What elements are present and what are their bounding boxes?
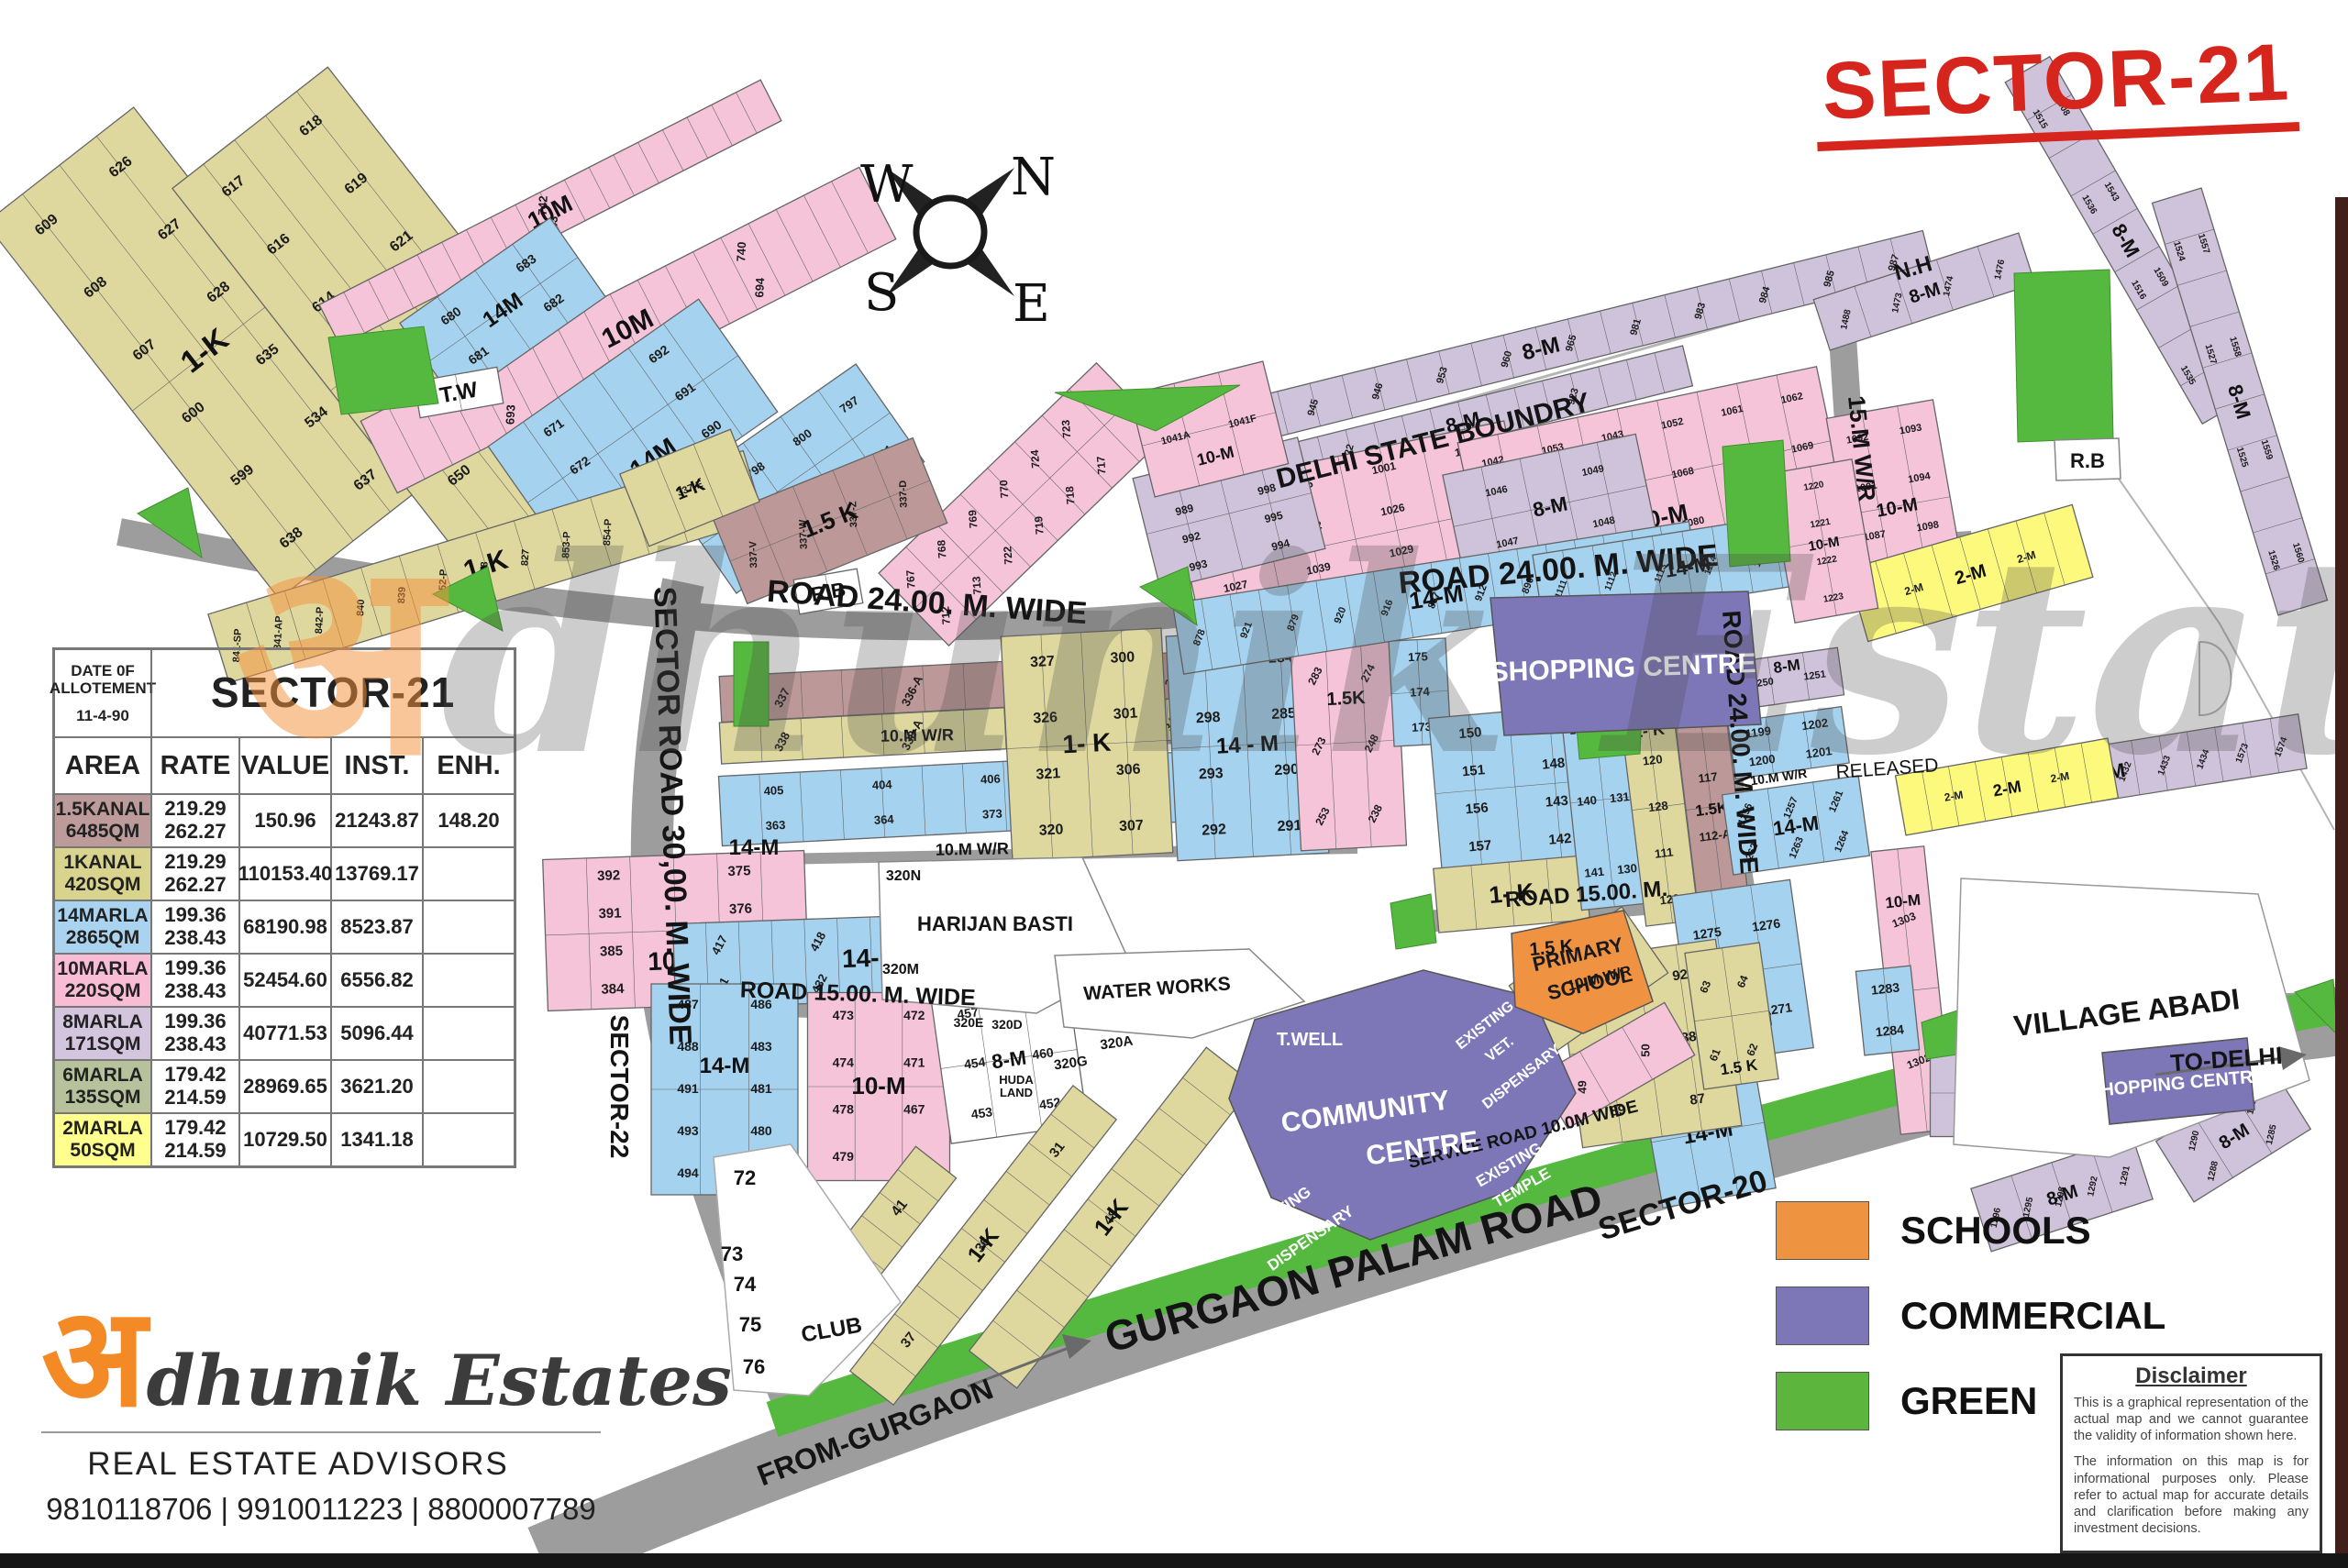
table-cell: 6MARLA135SQM: [54, 1060, 151, 1113]
plot-number: 285: [1271, 706, 1297, 723]
table-sector-title: SECTOR-21: [151, 649, 515, 737]
table-cell: 1KANAL420SQM: [54, 847, 151, 900]
plot-number: 827: [520, 548, 532, 566]
plot-number: 840: [355, 599, 367, 616]
plot-number: 768: [935, 539, 948, 558]
disclaimer-box: Disclaimer This is a graphical represent…: [2060, 1353, 2322, 1553]
plot-number: 392: [597, 867, 621, 884]
plot-number: 453: [970, 1104, 994, 1121]
table-cell: 8MARLA171SQM: [54, 1007, 151, 1060]
plot-number: 853-P: [560, 531, 573, 558]
column-header-value: VALUE: [239, 737, 331, 794]
huda-land-label2: LAND: [1000, 1086, 1033, 1099]
plot-number: 157: [1468, 837, 1492, 855]
table-cell: 3621.20: [331, 1060, 423, 1113]
plot-number: 384: [601, 981, 625, 998]
logo: अdhunik Estates: [41, 1288, 628, 1426]
plot-320m: 320M: [882, 962, 919, 977]
block-type-label: 8-M: [1772, 656, 1801, 677]
wr-label: 10.M W/R: [936, 839, 1009, 858]
table-cell: 1.5KANAL6485QM: [54, 794, 151, 847]
plot-number: 493: [677, 1123, 699, 1138]
plot-number: 307: [1119, 818, 1145, 834]
block-type-label: 10-M: [1885, 891, 1922, 912]
legend-swatch: [1776, 1286, 1869, 1345]
table-cell: 40771.53: [239, 1007, 331, 1060]
table-cell: 21243.87: [331, 794, 423, 847]
table-cell: 110153.40: [239, 847, 331, 900]
plot-block: 2-M2-M2-M: [1896, 738, 2119, 835]
logo-initial: अ: [41, 1276, 147, 1438]
sector-22-label: SECTOR-22: [605, 1015, 634, 1159]
table-cell: 13769.17: [331, 847, 423, 900]
table-cell: 52454.60: [239, 954, 331, 1007]
legend-swatch: [1776, 1372, 1869, 1430]
huda-land-label1: HUDA: [999, 1073, 1034, 1087]
plot-number: 693: [503, 404, 517, 425]
plot-number: 140: [1576, 793, 1597, 809]
block-type-label: 14 - M: [1215, 731, 1279, 759]
boundary-outline: [2199, 642, 2232, 715]
plot-number: 724: [1028, 449, 1042, 469]
table-cell: 28969.65: [239, 1060, 331, 1113]
table-cell: [423, 954, 515, 1007]
legend-item-schools: SCHOOLS: [1776, 1201, 2165, 1260]
plot-number: 143: [1545, 793, 1568, 811]
plot-number: 321: [1036, 766, 1061, 782]
plot-number: 376: [729, 900, 753, 917]
table-cell: [423, 847, 515, 900]
table-cell: [423, 900, 515, 954]
table-cell: 179.42214.59: [151, 1060, 239, 1113]
plot-number: 111: [1654, 845, 1674, 860]
plot-number: 473: [833, 1008, 855, 1022]
plot-number: 842-P: [314, 607, 327, 635]
table-cell: 199.36238.43: [151, 1007, 239, 1060]
green-area: [2014, 270, 2113, 442]
plot-number: 740: [734, 241, 748, 261]
plot-75: 75: [739, 1313, 761, 1336]
plot-number: 474: [833, 1055, 855, 1069]
plot-number: 472: [903, 1008, 925, 1022]
legend-swatch: [1776, 1201, 1869, 1260]
plot-number: 467: [903, 1102, 925, 1117]
date-line1: DATE 0F: [71, 662, 135, 679]
plot-number: 480: [750, 1123, 772, 1138]
compass-east: E: [1013, 274, 1050, 334]
table-cell: 10MARLA220SQM: [54, 954, 151, 1007]
plot-number: 481: [750, 1081, 772, 1096]
plot-block: 2832742732482532381.5K: [1290, 635, 1407, 851]
plot-72: 72: [734, 1166, 756, 1189]
legend-label: COMMERCIAL: [1900, 1294, 2165, 1338]
plot-number: 130: [1616, 861, 1637, 877]
plot-number: 293: [1199, 766, 1224, 782]
column-header-inst: INST.: [331, 737, 423, 794]
plot-number: 718: [1063, 485, 1077, 504]
plot-number: 327: [1030, 654, 1056, 670]
plot-320n: 320N: [886, 868, 921, 884]
compass-north: N: [1011, 148, 1056, 207]
table-cell: 68190.98: [239, 900, 331, 954]
table-cell: 148.20: [423, 794, 515, 847]
table-body: 1.5KANAL6485QM219.29262.27150.9621243.87…: [54, 794, 515, 1166]
block-type-label: 1- K: [1062, 728, 1112, 759]
plot-number: 1284: [1875, 1021, 1905, 1039]
table-cell: 5096.44: [331, 1007, 423, 1060]
branding-block: अdhunik Estates REAL ESTATE ADVISORS 981…: [41, 1288, 628, 1527]
green-area: [328, 326, 438, 414]
plot-number: 405: [763, 783, 783, 798]
plot-number: 391: [598, 905, 622, 922]
plot-number: 337-D: [898, 480, 910, 508]
plot-number: 723: [1059, 419, 1073, 438]
table-cell: [423, 1113, 515, 1166]
disclaimer-paragraph-2: The information on this map is for infor…: [2074, 1453, 2309, 1537]
plot-number: 406: [980, 772, 1001, 787]
plot-number: 120: [1642, 752, 1663, 768]
plot-number: 854-P: [602, 519, 615, 547]
date-value: 11-4-90: [76, 707, 129, 724]
plot-block: 12831284: [1855, 966, 1919, 1055]
plot-number: 148: [1542, 756, 1566, 773]
plot-number: 404: [871, 778, 892, 792]
plot-number: 175: [1408, 649, 1428, 664]
table-cell: 10729.50: [239, 1113, 331, 1166]
table-cell: 6556.82: [331, 954, 423, 1007]
frame-bottom-strip: [0, 1553, 2348, 1568]
table-cell: 2MARLA50SQM: [54, 1113, 151, 1166]
plot-number: 151: [1461, 762, 1485, 779]
plot-number: 49: [1575, 1080, 1589, 1093]
plot-number: 722: [1001, 546, 1014, 565]
block-type-label: 8-M: [991, 1045, 1028, 1073]
plot-number: 770: [997, 480, 1011, 499]
brand-subtitle: REAL ESTATE ADVISORS: [41, 1446, 555, 1483]
block-type-label: 14-M: [700, 1054, 750, 1078]
plot-number: 769: [966, 509, 980, 528]
plot-number: 471: [903, 1055, 925, 1069]
plot-number: 306: [1115, 762, 1141, 778]
plot-number: 483: [750, 1039, 772, 1054]
table-cell: 14MARLA2865QM: [54, 900, 151, 954]
frame-right-strip: [2335, 197, 2348, 1568]
column-header-enh: ENH.: [423, 737, 515, 794]
plot-number: 454: [963, 1055, 987, 1072]
plot-73: 73: [721, 1242, 743, 1265]
plot-number: 841-AP: [272, 615, 285, 650]
plot-number: 50: [1639, 1043, 1653, 1056]
plot-number: 839: [396, 587, 408, 604]
plot-number: 385: [600, 944, 624, 960]
compass-west: W: [860, 155, 914, 215]
column-header-rate: RATE: [151, 737, 239, 794]
compass-south: S: [864, 263, 899, 323]
plot-number: 131: [1609, 790, 1630, 805]
table-row: 2MARLA50SQM179.42214.5910729.501341.18: [54, 1113, 515, 1166]
disclaimer-paragraph-1: This is a graphical representation of th…: [2074, 1395, 2309, 1444]
plot-number: 694: [752, 277, 767, 298]
plot-number: 92: [1671, 966, 1689, 984]
wr-label: 10.M W/R: [880, 725, 954, 745]
brand-phones: 9810118706 | 9910011223 | 8800007789: [41, 1492, 601, 1527]
rates-table: DATE 0F ALLOTEMENT 11-4-90 SECTOR-21 ARE…: [52, 647, 516, 1168]
rb-label: R.B: [2070, 449, 2105, 472]
block-label-14m: 14-M: [729, 835, 780, 860]
plot-number: 142: [1548, 831, 1572, 848]
plot-number: 117: [1698, 769, 1719, 785]
table-row: 10MARLA220SQM199.36238.4352454.606556.82: [54, 954, 515, 1007]
plot-number: 1283: [1870, 980, 1900, 998]
green-area: [1722, 440, 1790, 567]
plot-number: 326: [1033, 710, 1058, 726]
plot-number: 298: [1195, 710, 1221, 726]
plot-number: 300: [1110, 649, 1135, 666]
plot-76: 76: [743, 1355, 765, 1378]
disclaimer-title: Disclaimer: [2074, 1364, 2309, 1389]
plot-number: 292: [1202, 822, 1227, 838]
plot-320a: 320A: [1099, 1033, 1134, 1054]
plot-number: 337-V: [748, 540, 759, 568]
plot-number: 363: [765, 818, 785, 833]
plot-number: 375: [727, 863, 751, 879]
column-header-area: AREA: [54, 737, 151, 794]
table-cell: 219.29262.27: [151, 794, 239, 847]
table-row: 1.5KANAL6485QM219.29262.27150.9621243.87…: [54, 794, 515, 847]
plot-number: 87: [1689, 1091, 1706, 1109]
plot-number: 364: [873, 812, 894, 827]
plot-number: 478: [833, 1102, 855, 1117]
table-cell: 8523.87: [331, 900, 423, 954]
plot-number: 717: [1094, 456, 1108, 475]
table-column-headers: AREARATEVALUEINST.ENH.: [54, 737, 515, 794]
plot-number: 150: [1458, 724, 1482, 742]
table-cell: 219.29262.27: [151, 847, 239, 900]
plot-block: 47347247447147846747910-M: [808, 993, 950, 1181]
legend-label: SCHOOLS: [1900, 1209, 2091, 1253]
table-cell: [423, 1060, 515, 1113]
plot-number: 290: [1274, 762, 1300, 778]
plot-number: 373: [982, 807, 1002, 822]
plot-number: 491: [677, 1081, 699, 1096]
block-type-label: 1.5K: [1326, 688, 1367, 710]
block-type-label: 10-M: [851, 1072, 905, 1099]
table-cell: 199.36238.43: [151, 954, 239, 1007]
plot-number: 479: [833, 1149, 855, 1164]
table-row: 8MARLA171SQM199.36238.4340771.535096.44: [54, 1007, 515, 1060]
logo-text: dhunik Estates: [147, 1340, 732, 1421]
legend-label: GREEN: [1900, 1379, 2037, 1423]
table-cell: 1341.18: [331, 1113, 423, 1166]
plot-number: 174: [1410, 684, 1431, 699]
table-row: 1KANAL420SQM219.29262.27110153.4013769.1…: [54, 847, 515, 900]
sector-map-canvas: 6096266086276076286006355995346386371-K6…: [0, 0, 2348, 1568]
compass-rose: W N S E: [844, 128, 1059, 344]
table-row: 6MARLA135SQM179.42214.5928969.653621.20: [54, 1060, 515, 1113]
green-area: [734, 642, 769, 726]
table-cell: [423, 1007, 515, 1060]
date-line2: ALLOTEMENT: [50, 679, 156, 697]
table-cell: 150.96: [239, 794, 331, 847]
plot-number: 719: [1032, 515, 1046, 535]
plot-number: 156: [1465, 800, 1489, 817]
plot-number: 128: [1647, 799, 1668, 815]
plot-number: 494: [677, 1165, 699, 1180]
plot-number: 141: [1584, 865, 1605, 880]
harijan-basti-label: HARIJAN BASTI: [917, 912, 1073, 935]
green-area: [1390, 894, 1436, 949]
table-row: 14MARLA2865QM199.36238.4368190.988523.87: [54, 900, 515, 954]
plot-74: 74: [734, 1273, 757, 1296]
plot-320d: 320D: [991, 1017, 1022, 1032]
table-cell: 199.36238.43: [151, 900, 239, 954]
plot-block: 155715581559156015241527152515268-M: [2153, 188, 2328, 615]
compass-circle: [916, 198, 984, 266]
plot-number: 291: [1277, 818, 1302, 834]
plot-number: 460: [1031, 1044, 1055, 1062]
allotment-date-cell: DATE 0F ALLOTEMENT 11-4-90: [54, 649, 151, 737]
plot-320e: 320E: [954, 1015, 984, 1030]
plot-block: 3273003263013213063203071- K: [1001, 628, 1173, 861]
table-cell: 179.42214.59: [151, 1113, 239, 1166]
t-well-label: T.WELL: [1277, 1030, 1343, 1050]
page-title: SECTOR-21: [1813, 25, 2300, 151]
plot-number: 320: [1038, 822, 1064, 838]
legend-item-commercial: COMMERCIAL: [1776, 1286, 2165, 1345]
plot-number: 301: [1113, 705, 1138, 722]
